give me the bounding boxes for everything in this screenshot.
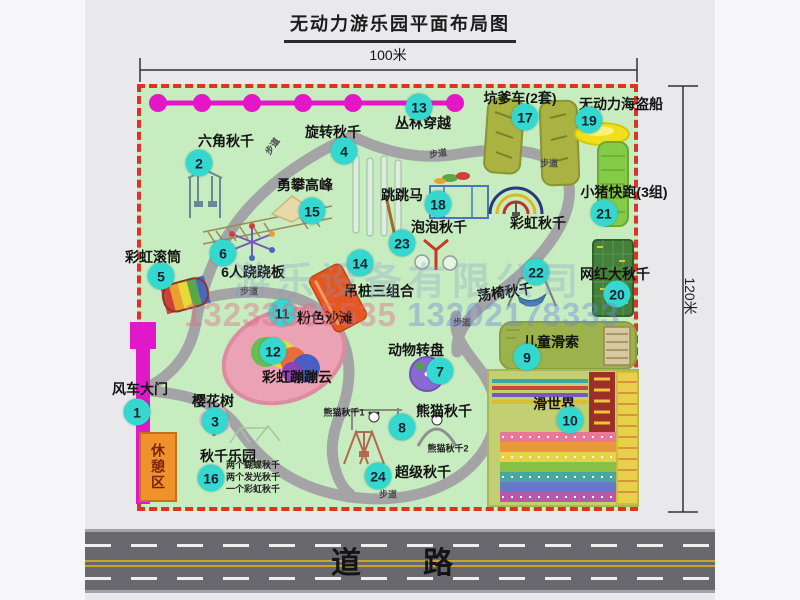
badge-1: 1 (124, 399, 151, 426)
badge-17: 17 (512, 104, 539, 131)
badge-10: 10 (557, 407, 584, 434)
path-label: 步道 (428, 145, 448, 160)
badge-2: 2 (186, 150, 213, 177)
badge-18: 18 (425, 191, 452, 218)
width-dimension-label: 100米 (369, 45, 406, 65)
badge-20: 20 (604, 281, 631, 308)
badge-22: 22 (523, 259, 550, 286)
badge-8: 8 (389, 414, 416, 441)
windmill-gate-label: 风车大门 (112, 379, 168, 399)
path-label: 步道 (379, 488, 397, 501)
badge-23: 23 (389, 230, 416, 257)
badge-19: 19 (576, 107, 603, 134)
pink-beach-label: 粉色沙滩 (297, 308, 353, 328)
rest-area-box: 休憩区 (139, 432, 177, 502)
swing-park-sub-item: 两个发光秋千 (226, 471, 280, 483)
jumping-horse-label: 跳跳马 (381, 185, 423, 205)
map-title: 无动力游乐园平面布局图 (284, 10, 516, 43)
swing-park-sub-item: 两个蝴蝶秋千 (226, 459, 280, 471)
badge-7: 7 (427, 358, 454, 385)
swing-park-sublist: 两个蝴蝶秋千 两个发光秋千 一个彩虹秋千 (226, 459, 280, 495)
badge-11: 11 (269, 300, 296, 327)
six-person-seesaw-label: 6人跷跷板 (221, 262, 285, 282)
badge-9: 9 (514, 344, 541, 371)
swing-park-sub-item: 一个彩虹秋千 (226, 483, 280, 495)
hexagon-swing-label: 六角秋千 (198, 131, 254, 151)
badge-5: 5 (148, 263, 175, 290)
panda-swing-label: 熊猫秋千 (416, 401, 472, 421)
panda-swing-1-label: 熊猫秋千1 (323, 406, 364, 419)
height-dimension-label: 120米 (680, 277, 700, 314)
rotating-swing-label: 旋转秋千 (305, 122, 361, 142)
climbing-peak-label: 勇攀高峰 (277, 175, 333, 195)
hanging-pile-label: 吊桩三组合 (344, 281, 414, 301)
rainbow-cloud-label: 彩虹蹦蹦云 (262, 367, 332, 387)
badge-4: 4 (331, 138, 358, 165)
badge-12: 12 (260, 338, 287, 365)
badge-6: 6 (210, 240, 237, 267)
road-label: 道 路 (331, 538, 469, 582)
badge-14: 14 (347, 250, 374, 277)
badge-21: 21 (591, 200, 618, 227)
rest-area-label: 休憩区 (148, 443, 168, 491)
badge-3: 3 (202, 408, 229, 435)
bubble-swing-label: 泡泡秋千 (411, 217, 467, 237)
panda-swing-2-label: 熊猫秋千2 (427, 442, 468, 455)
path-label: 步道 (540, 157, 558, 170)
park-layout-map: 无动力游乐园平面布局图 (0, 0, 800, 600)
badge-13: 13 (406, 94, 433, 121)
badge-15: 15 (299, 198, 326, 225)
rainbow-swing-label: 彩虹秋千 (510, 213, 566, 233)
super-swing-label: 超级秋千 (395, 462, 451, 482)
piggy-run-label: 小猪快跑(3组) (580, 182, 667, 202)
badge-16: 16 (198, 465, 225, 492)
path-label: 步道 (453, 316, 471, 329)
badge-24: 24 (365, 463, 392, 490)
path-label: 步道 (240, 285, 258, 298)
